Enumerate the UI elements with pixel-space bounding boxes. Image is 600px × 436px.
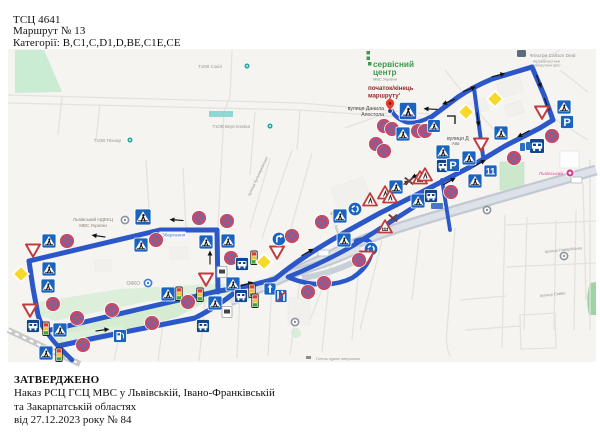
svg-text:Львівський: Львівський: [539, 170, 563, 177]
svg-text:ОККО: ОККО: [126, 281, 140, 287]
svg-text:Готель сgame метрополь: Готель сgame метрополь: [316, 357, 360, 361]
svg-text:ТзОВ Технар: ТзОВ Технар: [94, 138, 122, 143]
svg-text:Зберігання: Зберігання: [162, 233, 186, 238]
svg-text:Апостола: Апостола: [361, 112, 384, 118]
svg-text:11: 11: [486, 167, 496, 177]
svg-text:запчастини авто: запчастини авто: [533, 64, 560, 68]
svg-text:Фільтри Carbon Deal: Фільтри Carbon Deal: [530, 53, 575, 59]
svg-text:ТзОВ Верстехніка: ТзОВ Верстехніка: [212, 124, 250, 129]
svg-text:МВС України: МВС України: [79, 223, 107, 228]
svg-text:ТзОВ Сокіл: ТзОВ Сокіл: [198, 64, 222, 69]
svg-text:маршруту': маршруту': [368, 93, 401, 100]
svg-text:МВС України: МВС України: [373, 77, 397, 82]
svg-text:початок/кінець: початок/кінець: [368, 85, 414, 92]
svg-text:Апо: Апо: [452, 141, 460, 146]
svg-text:Львівський НДЕКЦ: Львівський НДЕКЦ: [73, 216, 114, 222]
